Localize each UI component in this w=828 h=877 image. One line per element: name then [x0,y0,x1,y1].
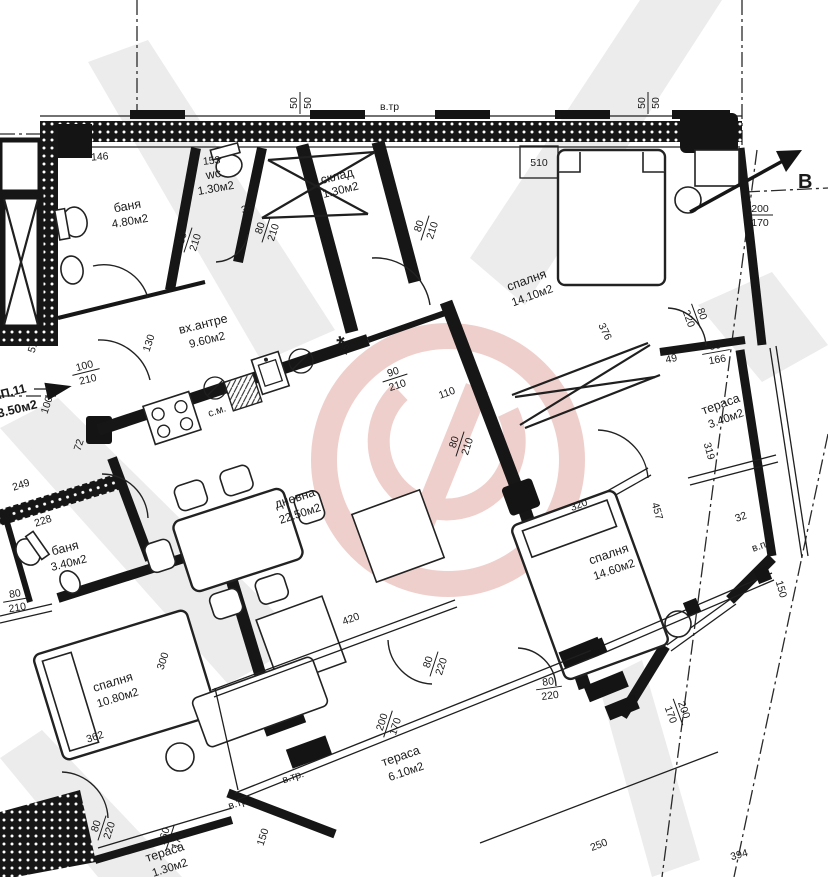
svg-text:50: 50 [302,97,314,109]
dim-249: 249 [11,477,32,494]
dim-130: 130 [141,333,158,354]
dim-250: 250 [589,836,610,854]
facade-wall [40,110,742,147]
svg-text:166: 166 [708,352,727,367]
elevator-shaft [2,196,40,328]
room-label-terrace-610: тераса 6.10м2 [380,743,427,784]
terrace-340 [660,340,808,558]
dim-510: 510 [530,157,548,169]
dim-110: 110 [437,385,457,402]
svg-text:170: 170 [751,217,769,229]
floor-plan-page: В 50 50 50 50 146 153 510 20 [0,0,828,877]
dim-319: 319 [701,441,717,461]
svg-text:wc: wc [204,166,222,183]
dim-150: 150 [773,579,789,599]
dim-32: 32 [733,509,748,524]
entrance-arrow [34,377,74,400]
svg-text:210: 210 [8,600,27,615]
svg-text:80: 80 [694,306,709,321]
dim-228: 228 [33,513,54,530]
nightstand-icon [665,611,691,637]
nightstand-icon [166,743,194,771]
svg-text:4.80м2: 4.80м2 [111,213,149,231]
dim-394: 394 [729,847,749,863]
svg-text:90: 90 [386,365,401,380]
dim-80-220: 80 220 [419,648,452,681]
vent-label: в.тр [380,101,399,113]
washer-label: с.м. [206,403,227,420]
svg-text:200: 200 [751,203,769,215]
svg-text:80: 80 [542,675,555,689]
dim-457: 457 [649,501,665,521]
vent-label: в.тр. [281,768,306,786]
dim-150: 150 [255,827,272,848]
floor-plan-canvas: В 50 50 50 50 146 153 510 20 [0,0,828,877]
svg-text:50: 50 [288,97,300,109]
dim-49: 49 [664,352,678,366]
svg-text:баня: баня [113,197,143,216]
room-label-hall: вх.антре 9.60м2 [177,311,233,352]
dim-146: 146 [91,150,109,163]
dim-376: 376 [595,321,614,342]
room-label-storage: склад 1.30м2 [318,165,360,201]
sink-icon [59,254,86,285]
dim-100-210: 100 210 [70,357,103,389]
svg-text:50: 50 [636,97,648,109]
section-letter: В [798,171,812,193]
toilet-icon [55,205,90,240]
svg-text:80: 80 [421,655,436,670]
dim-80-210: 80 210 [410,212,443,245]
dim-420: 420 [341,610,362,628]
svg-text:220: 220 [541,689,560,703]
svg-text:50: 50 [650,97,662,109]
room-label-bath2: баня 3.40м2 [46,537,89,574]
svg-text:210: 210 [78,372,98,388]
room-label-bath1: баня 4.80м2 [108,196,149,231]
dim-200-170: 200 170 [660,695,694,730]
svg-text:80: 80 [412,219,427,234]
bed-large [558,150,739,285]
